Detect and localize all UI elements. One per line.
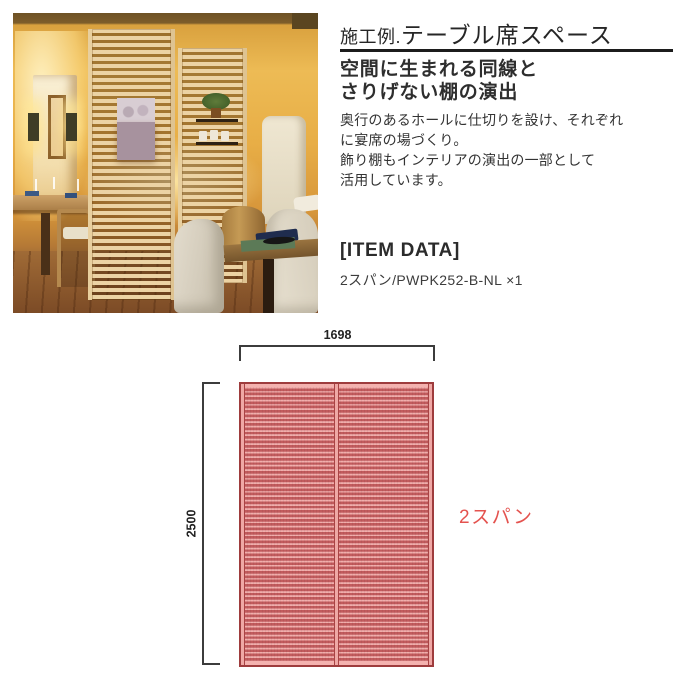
photo-partition-left-panel (88, 29, 175, 300)
photo-wall-sconce (28, 113, 39, 141)
item-data-value: 2スパン/PWPK252-B-NL ×1 (340, 270, 523, 290)
case-description-line2: に宴席の場づくり。 (340, 130, 623, 150)
case-description-line3: 飾り棚もインテリアの演出の一部として (340, 150, 623, 170)
title-underline (340, 49, 673, 52)
span-count-label: 2スパン (459, 502, 534, 529)
diagram-height-tick-top (202, 382, 220, 384)
diagram-height-tick-bottom (202, 663, 220, 665)
diagram-width-label: 1698 (240, 328, 435, 342)
photo-wine-glass (35, 179, 37, 191)
panel-right-stile (428, 384, 432, 665)
photo-foreground-table-leg (263, 259, 274, 313)
photo-wall-sconce (66, 113, 77, 141)
photo-artwork-top (117, 98, 155, 122)
case-subtitle-line2: さりげない棚の演出 (340, 81, 538, 104)
diagram-width-dimension-line (239, 345, 435, 347)
photo-shelf-cup (210, 130, 218, 140)
panel-drawing (239, 382, 434, 667)
photo-wine-glass (53, 177, 55, 189)
case-description: 奥行のあるホールに仕切りを設け、それぞれ に宴席の場づくり。 飾り棚もインテリア… (340, 110, 623, 190)
photo-shelf-cup (221, 131, 229, 141)
case-description-line4: 活用しています。 (340, 170, 623, 190)
case-title-main: テーブル席スペース (401, 16, 613, 50)
diagram-width-tick-left (239, 345, 241, 361)
photo-shelf-board (196, 119, 238, 122)
diagram-height-label: 2500 (185, 501, 200, 547)
diagram-height-dimension-line (202, 382, 204, 665)
photo-shelf-cup (199, 131, 207, 141)
photo-dining-table-leg (41, 213, 50, 275)
photo-ceiling-beam (292, 13, 318, 29)
case-description-line1: 奥行のあるホールに仕切りを設け、それぞれ (340, 110, 623, 130)
case-subtitle: 空間に生まれる同線と さりげない棚の演出 (340, 58, 538, 104)
photo-shelf-board (196, 142, 238, 145)
photo-blue-napkin (65, 193, 77, 198)
diagram-width-tick-right (433, 345, 435, 361)
case-subtitle-line1: 空間に生まれる同線と (340, 58, 538, 81)
photo-armchair-left (174, 219, 224, 313)
photo-plant-pot (211, 108, 221, 118)
page: 施工例.テーブル席スペース 空間に生まれる同線と さりげない棚の演出 奥行のある… (0, 0, 680, 680)
photo-blue-napkin (25, 191, 39, 196)
photo-artwork-panel (117, 122, 155, 160)
photo-window-frame (48, 95, 66, 159)
panel-center-mullion (334, 384, 339, 665)
case-title: 施工例.テーブル席スペース (340, 16, 676, 50)
case-title-prefix: 施工例. (340, 23, 401, 49)
installation-photo (13, 13, 318, 313)
panel-left-stile (241, 384, 245, 665)
item-data-heading: [ITEM DATA] (340, 240, 460, 262)
